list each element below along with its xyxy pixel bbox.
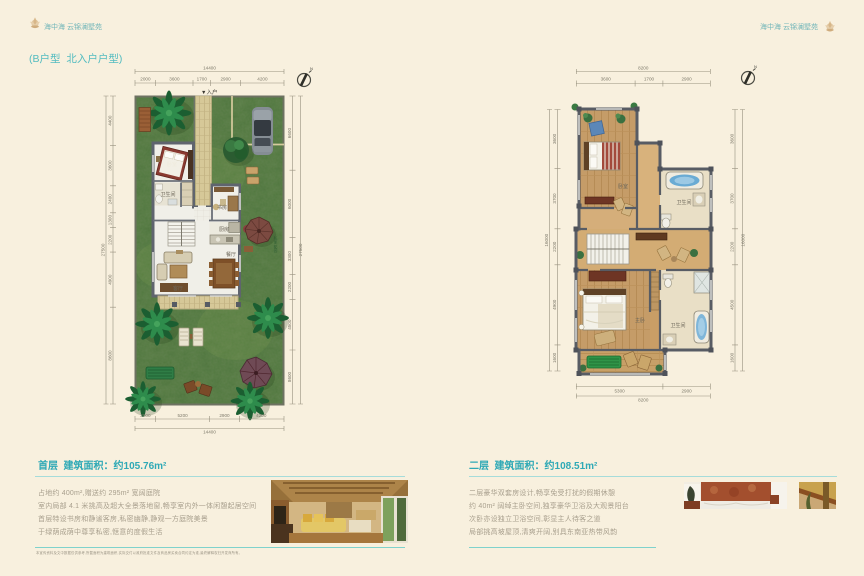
svg-text:2200: 2200 (108, 234, 113, 245)
svg-text:1300: 1300 (108, 215, 113, 226)
svg-text:3700: 3700 (552, 193, 557, 204)
svg-text:2000: 2000 (140, 77, 151, 82)
svg-text:2900: 2900 (220, 77, 231, 82)
svg-text:8600: 8600 (287, 371, 292, 382)
svg-text:16000: 16000 (741, 233, 746, 246)
svg-text:14400: 14400 (203, 430, 216, 435)
svg-text:卫生间: 卫生间 (670, 322, 685, 329)
svg-text:3600: 3600 (730, 133, 735, 144)
svg-text:1600: 1600 (552, 352, 557, 363)
svg-text:3600: 3600 (552, 133, 557, 144)
svg-text:N: N (754, 64, 757, 69)
svg-text:8200: 8200 (638, 66, 649, 71)
svg-text:3700: 3700 (730, 193, 735, 204)
svg-text:4900: 4900 (552, 299, 557, 310)
svg-text:卧室: 卧室 (618, 183, 628, 190)
svg-text:5300: 5300 (614, 389, 625, 394)
svg-text:4500: 4500 (730, 299, 735, 310)
svg-text:2200: 2200 (730, 241, 735, 252)
svg-text:4400: 4400 (108, 115, 113, 126)
svg-text:5200: 5200 (177, 413, 188, 418)
svg-text:3600: 3600 (108, 160, 113, 171)
svg-text:2900: 2900 (681, 389, 692, 394)
svg-text:2200: 2200 (287, 281, 292, 292)
svg-text:▼入户: ▼入户 (201, 88, 217, 96)
svg-text:8600: 8600 (108, 350, 113, 361)
svg-text:4200: 4200 (257, 77, 268, 82)
svg-text:卫生间: 卫生间 (160, 191, 175, 198)
svg-text:2200: 2200 (552, 241, 557, 252)
svg-text:主卧: 主卧 (635, 317, 645, 324)
svg-text:4200: 4200 (256, 413, 267, 418)
svg-text:2400: 2400 (108, 194, 113, 205)
svg-text:厨房: 厨房 (219, 226, 229, 233)
svg-text:餐厅: 餐厅 (226, 251, 236, 258)
svg-text:1700: 1700 (197, 77, 208, 82)
svg-text:3600: 3600 (169, 77, 180, 82)
svg-text:客厅: 客厅 (173, 285, 183, 292)
svg-text:8200: 8200 (638, 398, 649, 403)
svg-text:14400: 14400 (203, 66, 216, 71)
svg-text:2000: 2000 (140, 413, 151, 418)
svg-text:书房: 书房 (217, 204, 227, 211)
svg-text:N: N (310, 66, 313, 71)
svg-text:3600: 3600 (601, 77, 612, 82)
svg-text:6600: 6600 (287, 128, 292, 139)
svg-text:卧室: 卧室 (167, 161, 177, 168)
svg-text:27500: 27500 (298, 243, 303, 256)
svg-text:4900: 4900 (108, 274, 113, 285)
svg-text:3300: 3300 (287, 251, 292, 262)
svg-text:27500: 27500 (101, 243, 106, 256)
svg-text:2900: 2900 (219, 413, 230, 418)
svg-text:私家花园: 私家花园 (273, 235, 278, 253)
svg-text:1700: 1700 (644, 77, 655, 82)
svg-text:2900: 2900 (681, 77, 692, 82)
svg-text:1600: 1600 (730, 352, 735, 363)
svg-text:卫生间: 卫生间 (676, 199, 691, 206)
svg-text:16000: 16000 (544, 233, 549, 246)
svg-text:4500: 4500 (287, 319, 292, 330)
svg-text:6000: 6000 (287, 198, 292, 209)
